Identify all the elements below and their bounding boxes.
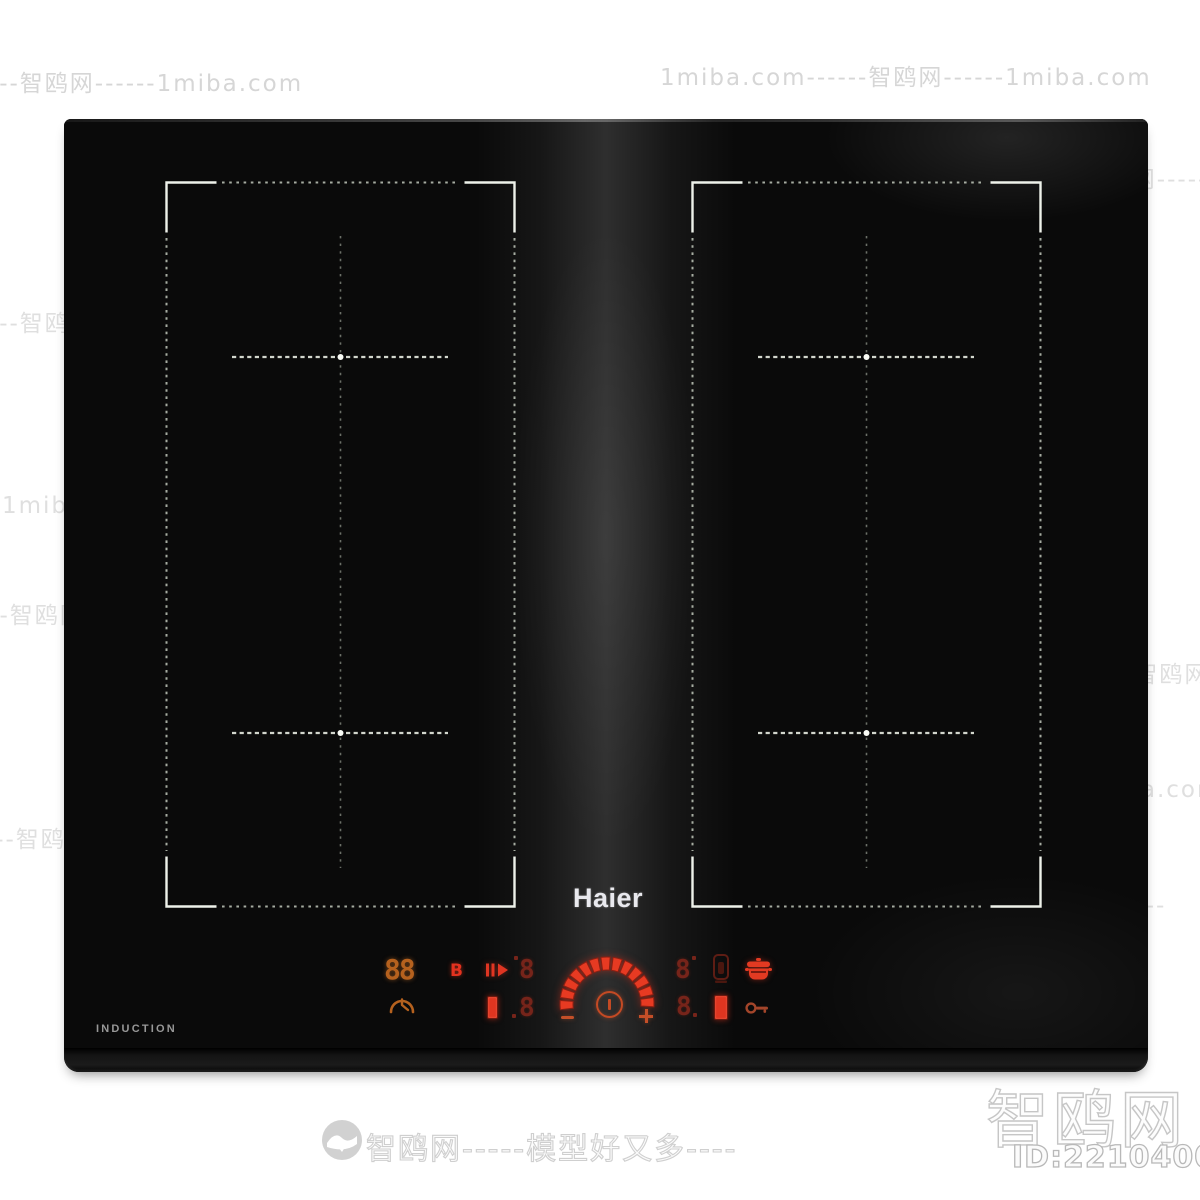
- heat-bar-left: [487, 996, 498, 1019]
- probe-icon: [712, 954, 730, 984]
- watermark-text: 1miba.com------智鸥网------1miba.com: [660, 58, 1152, 92]
- site-logo-icon: [321, 1119, 363, 1161]
- heat-bar-right: [714, 995, 728, 1020]
- model-id: ID:221040016: [1012, 1140, 1200, 1175]
- digit-top-right: 8: [675, 957, 691, 983]
- digit-top-left-mark: [514, 956, 518, 960]
- timer-icon: [388, 994, 416, 1018]
- pause-play-icon: [486, 963, 508, 977]
- site-name-large: 智鸥网: [986, 1070, 1187, 1161]
- plus-key: [639, 1009, 653, 1023]
- digit-bottom-right-dot: [693, 1013, 697, 1017]
- digit-bottom-right: 8: [676, 994, 692, 1020]
- model-label: INDUCTION: [96, 1023, 177, 1035]
- control-panel: 88 B 8 8: [0, 0, 1200, 27]
- key-lock-icon: [745, 1000, 771, 1016]
- minus-key: [561, 1016, 574, 1019]
- digit-bottom-left-dot: [512, 1014, 516, 1018]
- pot-icon: [745, 958, 772, 981]
- digit-top-left: 8: [519, 957, 535, 983]
- product-photo: ------智鸥网------1miba.com1miba.com------智…: [0, 0, 1200, 1200]
- induction-cooktop: [64, 119, 1148, 1072]
- heat-display: 88: [384, 956, 414, 984]
- front-edge: [64, 1048, 1148, 1072]
- boost-key: B: [450, 961, 463, 981]
- brand-logo: Haier: [550, 883, 666, 914]
- digit-top-right-mark: [692, 956, 696, 960]
- digit-bottom-left: 8: [519, 995, 535, 1021]
- watermark-text: ------智鸥网------1miba.com: [0, 64, 303, 98]
- power-icon: [596, 991, 623, 1018]
- site-tagline: 智鸥网-----模型好又多----: [366, 1124, 737, 1168]
